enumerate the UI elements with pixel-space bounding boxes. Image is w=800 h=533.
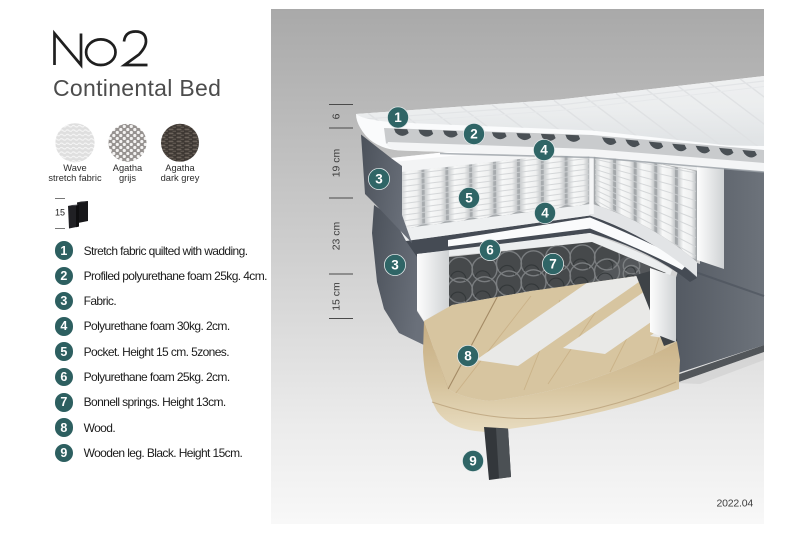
svg-text:15 cm: 15 cm [331,282,343,311]
svg-text:19 cm: 19 cm [331,148,343,177]
svg-text:2: 2 [470,127,478,142]
svg-text:15: 15 [55,208,65,218]
svg-text:1: 1 [394,110,402,125]
svg-text:2022.04: 2022.04 [716,498,753,510]
svg-text:4: 4 [541,206,549,221]
svg-text:8: 8 [464,349,472,364]
svg-text:23 cm: 23 cm [331,221,343,250]
svg-text:4: 4 [540,143,548,158]
svg-text:6: 6 [486,243,494,258]
svg-text:6: 6 [331,113,343,119]
svg-text:7: 7 [549,257,557,272]
svg-text:3: 3 [391,258,399,273]
svg-text:3: 3 [375,172,383,187]
svg-text:9: 9 [469,454,477,469]
svg-text:5: 5 [465,191,473,206]
